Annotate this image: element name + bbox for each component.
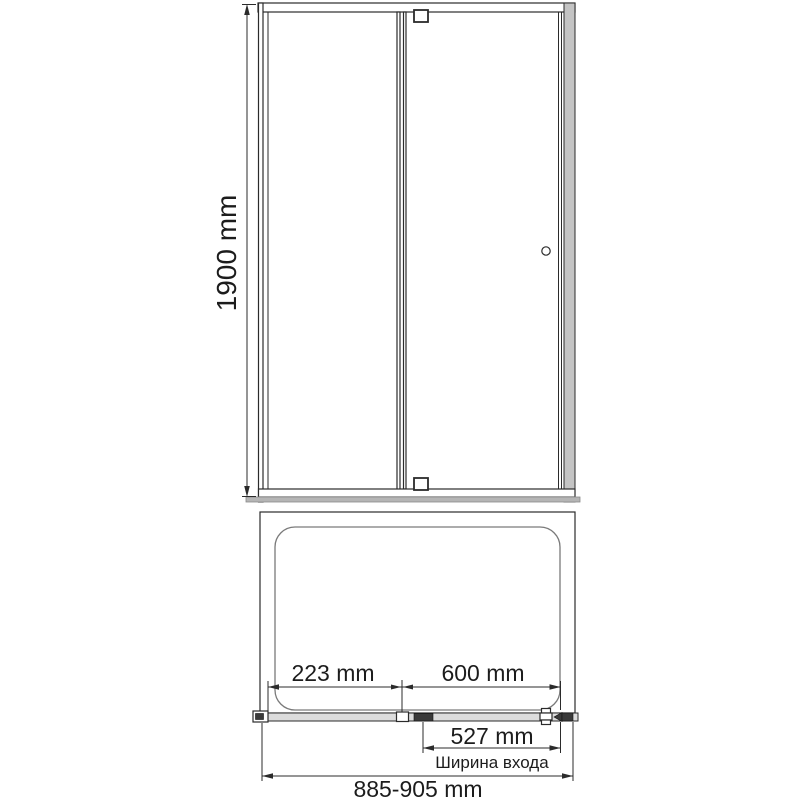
overall-dim-arrow-right bbox=[562, 773, 573, 778]
front-threshold-bar bbox=[246, 497, 580, 502]
entry-dim-arrow-left bbox=[423, 745, 434, 750]
door-width-label: 600 mm bbox=[441, 660, 524, 686]
sliding-door-left-edge bbox=[404, 12, 407, 489]
technical-drawing-canvas: 1900 mm 223 mm 600 mm bbox=[0, 0, 800, 800]
entry-dim-arrow-right bbox=[550, 745, 561, 750]
front-elevation-view bbox=[246, 3, 580, 502]
plan-right-bracket-tab-bottom bbox=[542, 720, 551, 725]
height-dim-arrow-down bbox=[244, 486, 250, 497]
height-dimension: 1900 mm bbox=[211, 4, 256, 497]
plan-right-bracket-icon bbox=[540, 713, 552, 720]
height-dim-label: 1900 mm bbox=[211, 195, 242, 312]
entry-width-label: 527 mm bbox=[450, 723, 533, 749]
door-handle-icon bbox=[542, 247, 550, 255]
bottom-guide-bracket-icon bbox=[414, 478, 428, 490]
plan-center-bracket-icon bbox=[397, 712, 409, 722]
plan-view bbox=[253, 512, 578, 725]
overall-dim-arrow-left bbox=[262, 773, 273, 778]
front-left-wall-profile bbox=[259, 3, 264, 502]
plan-door-slider-block bbox=[414, 714, 433, 722]
shower-door-drawing: 1900 mm 223 mm 600 mm bbox=[0, 0, 800, 800]
height-dim-arrow-up bbox=[244, 4, 250, 15]
overall-width-label: 885-905 mm bbox=[353, 776, 482, 800]
fixed-panel-right-edge bbox=[397, 12, 400, 493]
plan-left-bracket-block bbox=[256, 714, 264, 720]
top-hinge-bracket-icon bbox=[414, 10, 428, 22]
front-right-wall-profile bbox=[564, 3, 575, 502]
fixed-panel-width-label: 223 mm bbox=[291, 660, 374, 686]
plan-right-bracket-tab-top bbox=[542, 709, 551, 714]
plan-wall-clamp-block bbox=[562, 713, 573, 721]
entry-width-caption: Ширина входа bbox=[435, 753, 549, 772]
entry-width-dimension: 527 mm Ширина входа bbox=[423, 722, 561, 772]
